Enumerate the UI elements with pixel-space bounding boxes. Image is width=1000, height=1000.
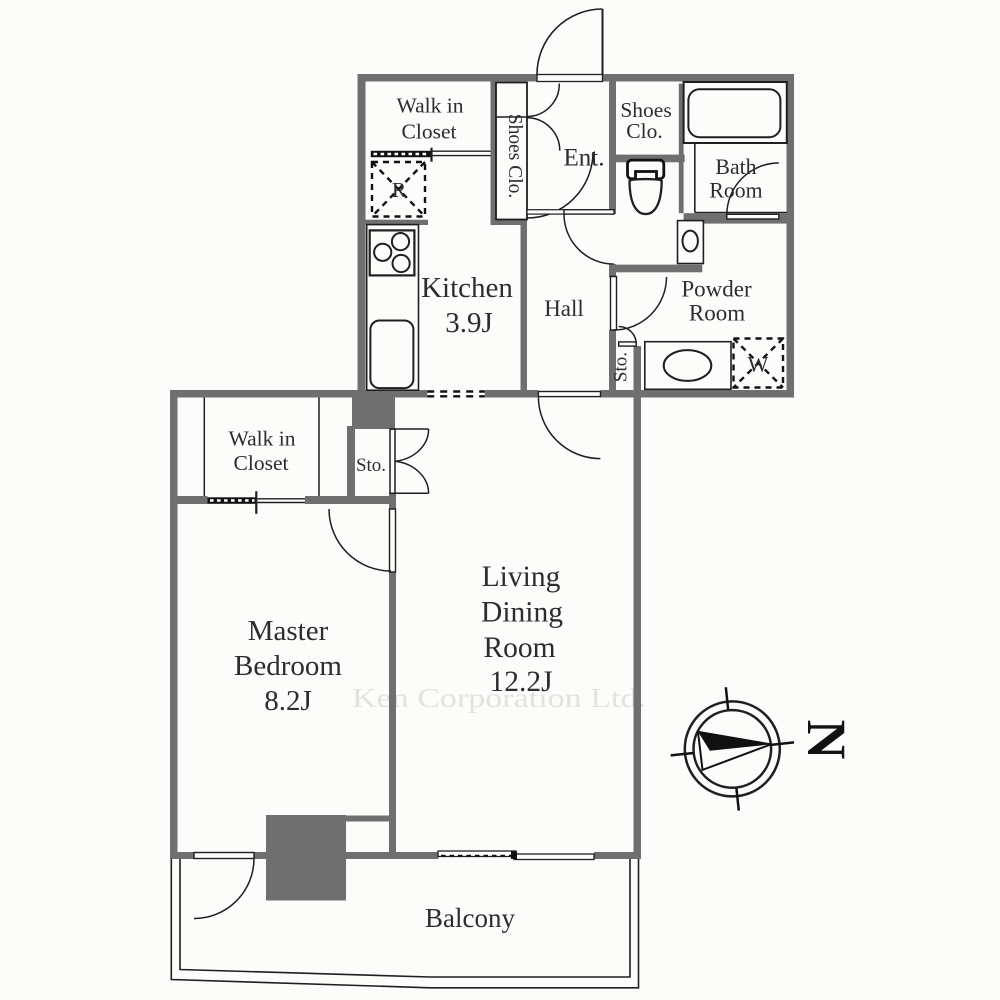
- svg-text:Room: Room: [709, 178, 762, 202]
- svg-text:W: W: [748, 352, 769, 377]
- svg-text:Bath: Bath: [715, 155, 756, 179]
- svg-text:Clo.: Clo.: [626, 119, 662, 143]
- svg-text:Bedroom: Bedroom: [234, 650, 342, 682]
- svg-text:Room: Room: [689, 300, 745, 325]
- svg-text:N: N: [796, 720, 857, 760]
- svg-text:Walk in: Walk in: [229, 427, 296, 451]
- svg-text:Closet: Closet: [402, 120, 457, 144]
- svg-text:Hall: Hall: [544, 296, 584, 321]
- svg-text:8.2J: 8.2J: [264, 685, 312, 717]
- svg-text:Ent.: Ent.: [564, 144, 605, 171]
- svg-text:Master: Master: [248, 615, 329, 647]
- svg-text:Shoes Clo.: Shoes Clo.: [504, 114, 525, 199]
- svg-text:Sto.: Sto.: [356, 455, 386, 476]
- svg-text:Balcony: Balcony: [425, 903, 515, 933]
- svg-text:R: R: [392, 178, 407, 202]
- svg-text:Room: Room: [483, 632, 555, 664]
- svg-text:Powder: Powder: [681, 277, 752, 302]
- svg-text:Living: Living: [482, 561, 561, 593]
- svg-text:Walk in: Walk in: [397, 94, 464, 118]
- svg-text:Dining: Dining: [481, 597, 563, 629]
- svg-text:Sto.: Sto.: [611, 352, 632, 382]
- svg-text:Kitchen: Kitchen: [421, 272, 513, 304]
- svg-text:12.2J: 12.2J: [489, 666, 552, 698]
- svg-text:Closet: Closet: [234, 451, 289, 475]
- svg-text:3.9J: 3.9J: [445, 307, 493, 339]
